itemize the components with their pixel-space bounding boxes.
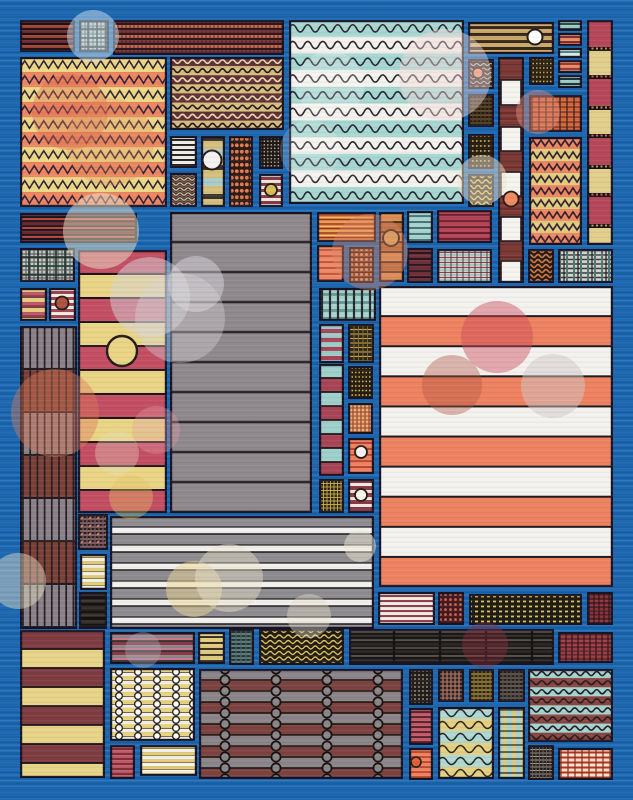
quilt-patch: [259, 629, 344, 665]
quilt-patch: [587, 592, 613, 625]
patch-layer: [0, 0, 633, 800]
quilt-patch: [170, 136, 197, 168]
quilt-patch: [113, 20, 284, 55]
quilt-patch: [20, 57, 167, 207]
quilt-patch: [468, 94, 494, 127]
quilt-patch: [558, 60, 582, 73]
quilt-patch: [140, 745, 197, 776]
quilt-patch: [20, 326, 77, 629]
quilt-patch: [409, 708, 433, 745]
quilt-patch: [437, 210, 492, 243]
quilt-patch: [319, 288, 376, 321]
quilt-patch: [317, 212, 376, 242]
quilt-patch: [379, 286, 613, 587]
quilt-patch: [558, 33, 582, 46]
quilt-patch: [558, 748, 613, 780]
quilt-patch: [80, 554, 107, 590]
quilt-patch: [170, 212, 312, 513]
quilt-patch: [498, 669, 525, 702]
quilt-patch: [78, 250, 167, 513]
quilt-patch: [348, 479, 374, 513]
quilt-patch: [498, 57, 524, 283]
quilt-patch: [20, 248, 75, 282]
quilt-patch: [438, 707, 494, 779]
quilt-patch: [558, 249, 613, 283]
quilt-patch: [587, 20, 613, 245]
quilt-patch: [407, 248, 433, 283]
quilt-patch: [379, 212, 404, 282]
quilt-patch: [49, 288, 76, 321]
quilt-patch: [528, 745, 554, 780]
quilt-patch: [349, 247, 374, 283]
quilt-patch: [468, 59, 494, 89]
quilt-patch: [319, 479, 344, 513]
quilt-patch: [20, 20, 75, 52]
quilt-patch: [79, 20, 109, 52]
quilt-patch: [468, 134, 494, 169]
quilt-patch: [529, 137, 582, 245]
quilt-patch: [348, 324, 374, 363]
quilt-patch: [319, 324, 344, 363]
quilt-patch: [319, 364, 344, 476]
quilt-canvas: [0, 0, 633, 800]
quilt-patch: [407, 211, 433, 243]
quilt-patch: [198, 632, 225, 664]
quilt-patch: [170, 57, 284, 130]
quilt-patch: [20, 213, 137, 243]
quilt-patch: [409, 669, 433, 705]
quilt-patch: [229, 136, 253, 207]
quilt-patch: [199, 669, 403, 779]
quilt-patch: [349, 629, 554, 665]
quilt-patch: [558, 75, 582, 88]
quilt-patch: [469, 669, 494, 702]
quilt-patch: [468, 174, 494, 207]
quilt-patch: [110, 632, 195, 664]
quilt-patch: [528, 669, 613, 742]
quilt-patch: [348, 403, 373, 434]
quilt-patch: [259, 136, 283, 169]
quilt-patch: [438, 592, 464, 625]
quilt-patch: [78, 514, 108, 550]
quilt-patch: [317, 245, 344, 282]
quilt-patch: [170, 173, 197, 207]
quilt-patch: [558, 48, 582, 58]
quilt-patch: [438, 669, 464, 702]
quilt-patch: [289, 20, 464, 204]
quilt-patch: [110, 745, 135, 779]
quilt-patch: [498, 707, 525, 779]
quilt-patch: [529, 57, 554, 85]
quilt-patch: [437, 249, 492, 283]
quilt-patch: [528, 249, 554, 283]
quilt-patch: [409, 748, 433, 780]
quilt-patch: [201, 136, 225, 207]
quilt-patch: [110, 668, 195, 741]
quilt-patch: [558, 632, 613, 663]
quilt-patch: [469, 594, 582, 625]
quilt-patch: [348, 438, 374, 474]
quilt-patch: [110, 516, 374, 629]
quilt-patch: [229, 629, 254, 665]
quilt-patch: [348, 366, 373, 399]
quilt-patch: [558, 20, 582, 31]
quilt-patch: [259, 174, 283, 207]
quilt-patch: [79, 592, 107, 629]
quilt-patch: [20, 288, 47, 321]
quilt-patch: [529, 95, 582, 132]
quilt-patch: [468, 22, 554, 54]
quilt-patch: [378, 592, 435, 625]
quilt-patch: [20, 630, 105, 778]
